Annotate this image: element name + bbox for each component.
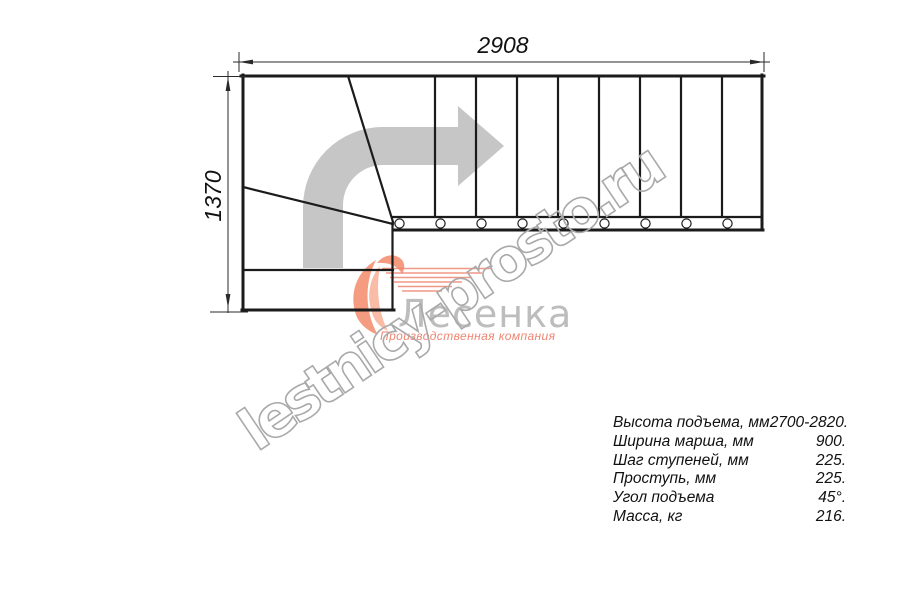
spec-label: Шаг ступеней, мм (613, 452, 749, 471)
watermark-text: lestnicy-prosto.ru (227, 132, 674, 464)
spec-label: Высота подъема, мм (613, 414, 770, 433)
spec-label: Проступь, мм (613, 470, 716, 489)
bolt-circle-icon (723, 219, 732, 228)
spec-value: 2700-2820. (770, 414, 848, 433)
dimension-top: 2908 (233, 32, 770, 72)
spec-value: 45°. (818, 489, 846, 508)
spec-row: Угол подъема45°. (613, 489, 846, 508)
bolt-circle-icon (395, 219, 404, 228)
dim-arrow-left-icon (239, 60, 253, 65)
spec-value: 225. (816, 452, 846, 471)
spec-value: 900. (816, 433, 846, 452)
spec-row: Ширина марша, мм900. (613, 433, 846, 452)
dim-arrow-up-icon (226, 77, 231, 91)
spec-label: Масса, кг (613, 508, 682, 527)
spec-row: Проступь, мм225. (613, 470, 846, 489)
bolt-circle-icon (641, 219, 650, 228)
bolt-circle-icon (682, 219, 691, 228)
bolt-circle-icon (436, 219, 445, 228)
logo-swoosh-hook-icon (377, 255, 404, 274)
dimension-left: 1370 (200, 71, 248, 313)
spec-value: 216. (816, 508, 846, 527)
dimension-width-value: 2908 (476, 32, 528, 58)
spec-value: 225. (816, 470, 846, 489)
spec-table: Высота подъема, мм2700-2820.Ширина марша… (613, 414, 846, 527)
spec-label: Ширина марша, мм (613, 433, 754, 452)
spec-label: Угол подъема (613, 489, 714, 508)
dimension-depth-value: 1370 (200, 170, 226, 221)
site-watermark: lestnicy-prosto.ru (227, 132, 674, 464)
dim-arrow-right-icon (750, 60, 764, 65)
bolt-circle-icon (477, 219, 486, 228)
spec-row: Высота подъема, мм2700-2820. (613, 414, 846, 433)
spec-row: Масса, кг216. (613, 508, 846, 527)
spec-row: Шаг ступеней, мм225. (613, 452, 846, 471)
dim-arrow-down-icon (226, 294, 231, 308)
